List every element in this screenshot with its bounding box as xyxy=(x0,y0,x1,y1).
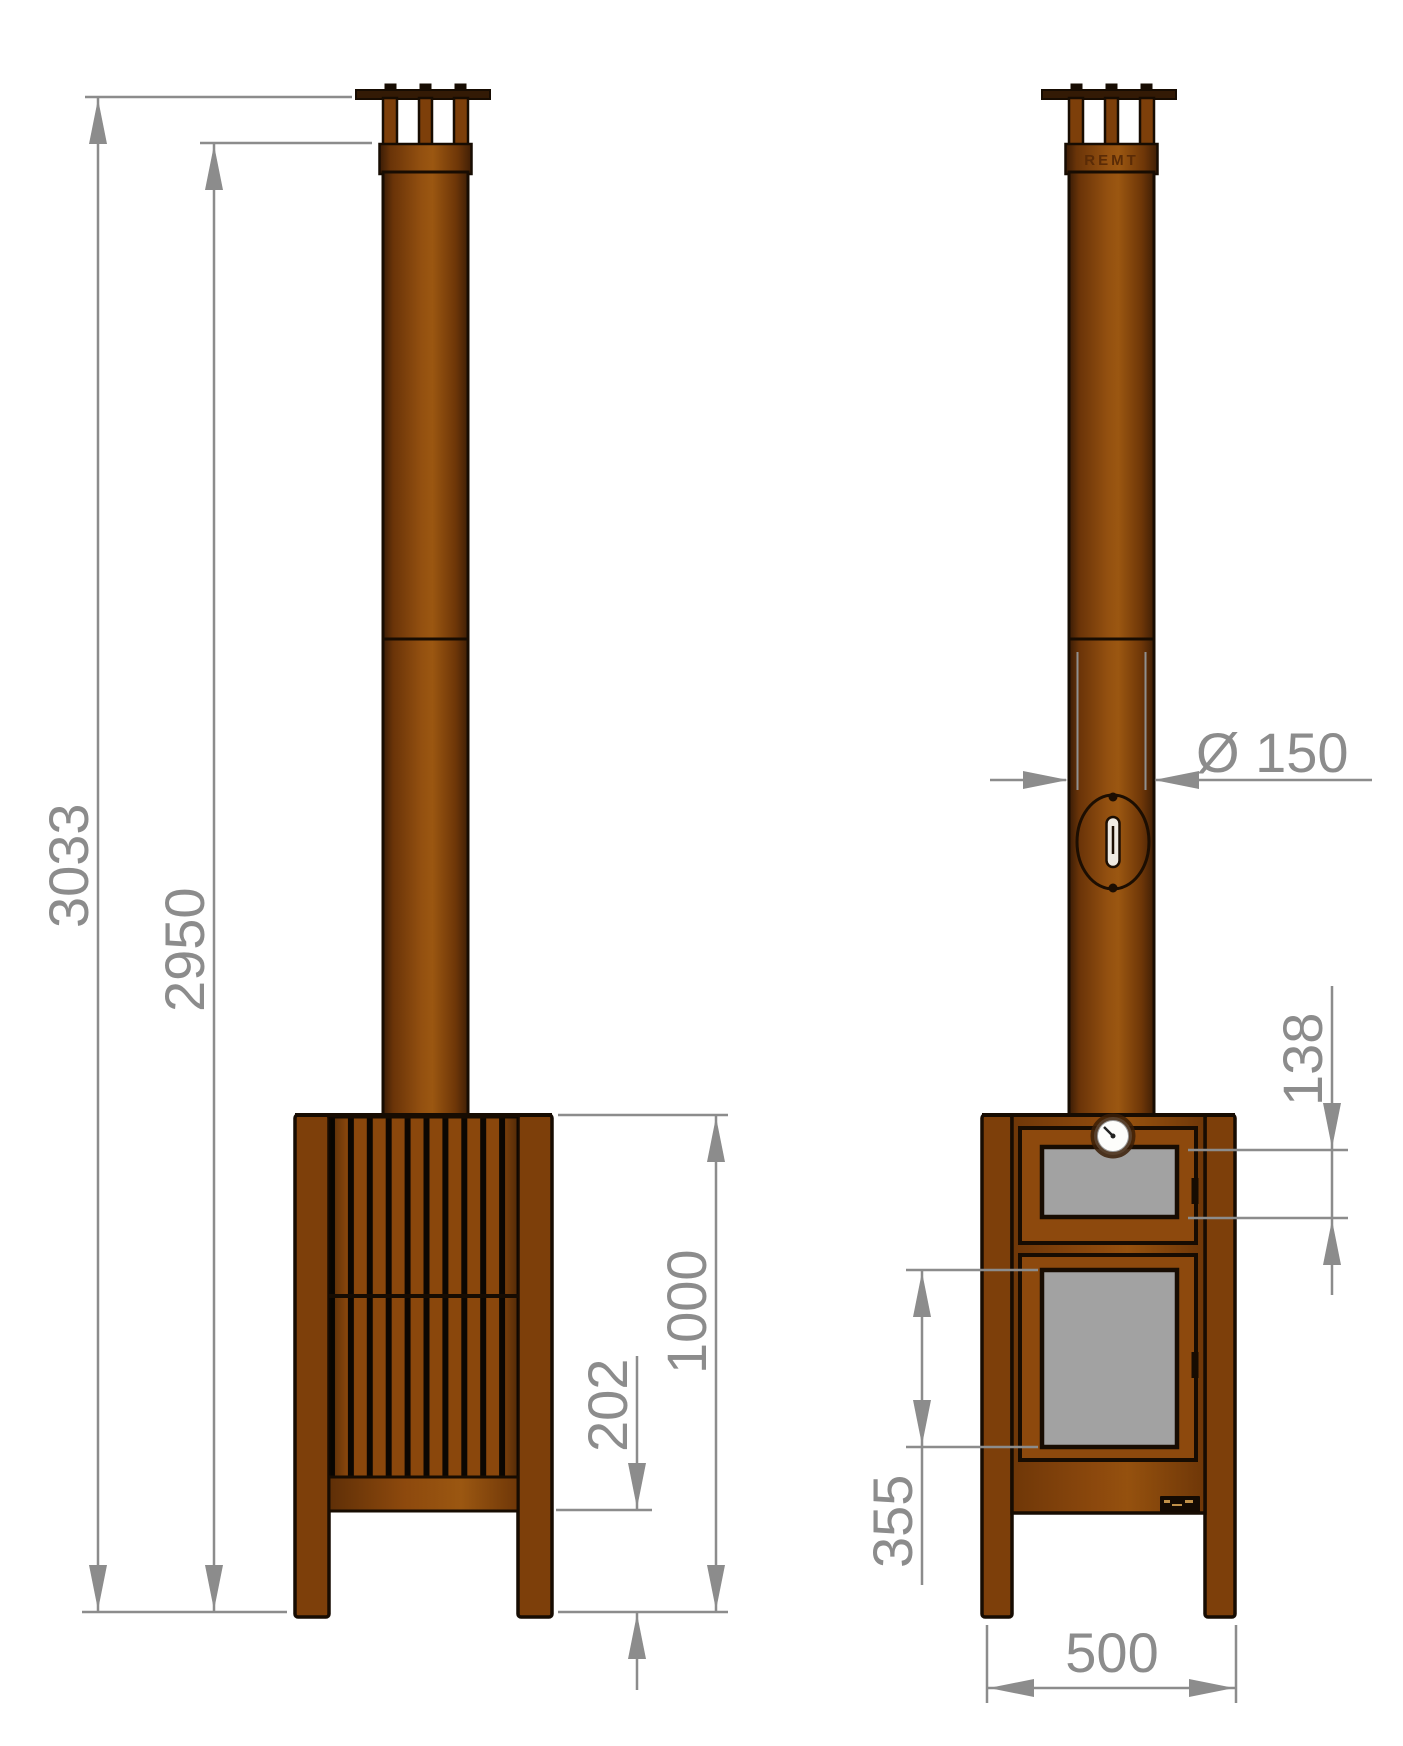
dimension-value: 3033 xyxy=(37,803,100,928)
cap-post xyxy=(1140,98,1154,145)
dimension-value: 138 xyxy=(1271,1013,1334,1106)
technical-drawing-page: REMT xyxy=(0,0,1403,1746)
cap-post xyxy=(1069,98,1083,145)
bottom-rail xyxy=(329,1477,518,1511)
damper-bolt xyxy=(1109,884,1118,893)
damper-bolt xyxy=(1109,793,1118,802)
dimension-value: 1000 xyxy=(655,1249,718,1374)
thermometer-pivot xyxy=(1111,1134,1116,1139)
side-right-leg xyxy=(518,1115,552,1617)
front-right-leg xyxy=(1205,1115,1235,1617)
dimension-value: 500 xyxy=(1065,1621,1158,1684)
upper-door-hinge xyxy=(1192,1178,1199,1204)
cap-post xyxy=(419,98,432,145)
brand-plate-mark xyxy=(1164,1500,1170,1503)
front-flue-pipe xyxy=(1069,172,1154,1117)
brand-plate-mark xyxy=(1185,1500,1193,1503)
cap-post xyxy=(383,98,397,145)
lower-door-glass xyxy=(1042,1270,1177,1447)
side-flue-pipe xyxy=(383,172,468,1117)
thermometer xyxy=(1094,1117,1132,1155)
lower-door-hinge xyxy=(1192,1352,1199,1378)
side-left-leg xyxy=(295,1115,329,1617)
brand-plate xyxy=(1160,1496,1200,1512)
cap-collar xyxy=(380,144,472,174)
cap-post xyxy=(454,98,468,145)
dimension-value: 355 xyxy=(861,1475,924,1568)
cap-post xyxy=(1105,98,1118,145)
dimension-value: Ø 150 xyxy=(1196,721,1349,784)
stove-technical-drawing: REMT xyxy=(0,0,1403,1746)
embossed-brand-text: REMT xyxy=(1084,152,1139,169)
front-left-leg xyxy=(982,1115,1012,1617)
dimension-value: 202 xyxy=(576,1359,639,1452)
dimension-value: 2950 xyxy=(153,887,216,1012)
brand-plate-mark xyxy=(1172,1504,1182,1506)
